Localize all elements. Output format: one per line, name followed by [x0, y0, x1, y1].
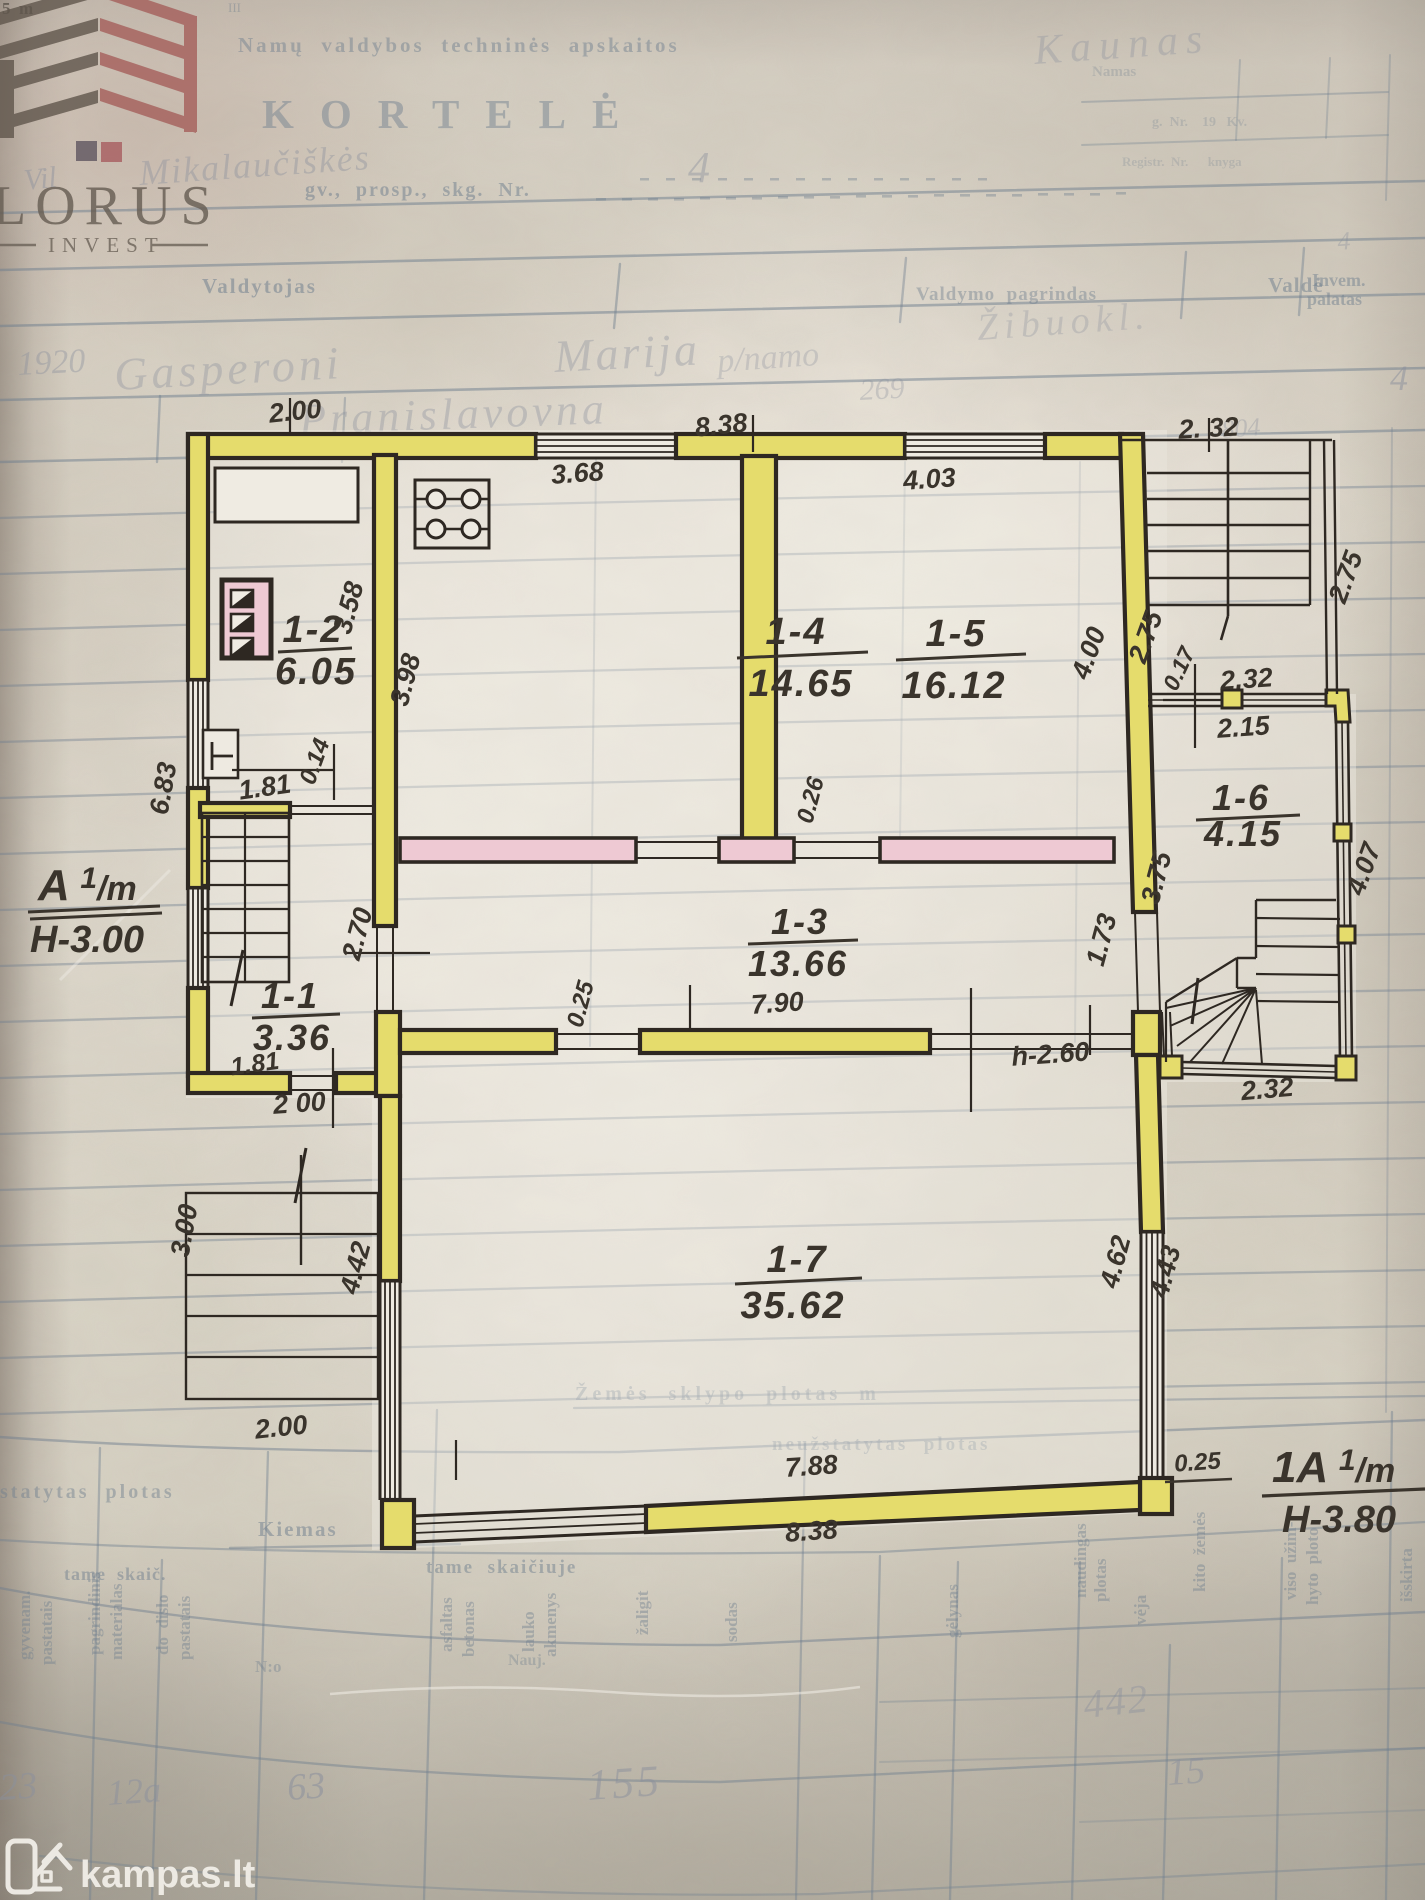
- svg-text:H-3.00: H-3.00: [30, 919, 144, 961]
- svg-text:12a: 12a: [106, 1769, 163, 1813]
- svg-text:16.12: 16.12: [901, 665, 1006, 707]
- svg-text:155: 155: [585, 1756, 663, 1810]
- svg-text:Kiemas: Kiemas: [258, 1517, 338, 1541]
- svg-text:1-1: 1-1: [261, 975, 319, 1016]
- svg-text:kampas.lt: kampas.lt: [80, 1854, 256, 1896]
- svg-text:269: 269: [859, 372, 906, 407]
- svg-text:7.90: 7.90: [750, 986, 805, 1020]
- svg-text:2.00: 2.00: [252, 1409, 308, 1444]
- svg-text:plotas: plotas: [1091, 1558, 1110, 1602]
- svg-text:išskirta: išskirta: [1397, 1548, 1416, 1602]
- svg-text:7.88: 7.88: [784, 1449, 839, 1483]
- svg-text:H-3.80: H-3.80: [1282, 1499, 1396, 1541]
- svg-text:tame skaič.: tame skaič.: [64, 1564, 166, 1584]
- svg-text:1-6: 1-6: [1212, 777, 1270, 818]
- svg-text:4.15: 4.15: [1203, 813, 1282, 854]
- svg-text:0.25: 0.25: [1173, 1447, 1222, 1477]
- svg-text:INVEST: INVEST: [48, 233, 165, 257]
- svg-text:23: 23: [0, 1764, 39, 1809]
- svg-text:14.65: 14.65: [748, 663, 853, 705]
- svg-text:akmenys: akmenys: [541, 1592, 560, 1657]
- svg-text:gyvenam.: gyvenam.: [15, 1591, 34, 1660]
- svg-text:pagrindinis: pagrindinis: [85, 1571, 104, 1655]
- svg-text:1-7: 1-7: [767, 1239, 828, 1281]
- svg-text:tame skaičiuje: tame skaičiuje: [426, 1557, 577, 1578]
- svg-text:2.32: 2.32: [1218, 662, 1274, 696]
- svg-text:1-4: 1-4: [766, 611, 827, 653]
- svg-text:III: III: [228, 0, 241, 15]
- svg-text:statytas plotas: statytas plotas: [0, 1481, 175, 1503]
- svg-text:1-5: 1-5: [926, 613, 987, 655]
- svg-text:8.38: 8.38: [784, 1514, 839, 1548]
- svg-text:betonas: betonas: [459, 1601, 478, 1657]
- svg-text:4: 4: [688, 143, 710, 192]
- svg-text:palatas: palatas: [1307, 289, 1362, 309]
- svg-text:6.05: 6.05: [275, 651, 357, 693]
- svg-text:N:o: N:o: [255, 1657, 281, 1676]
- svg-text:2.32: 2.32: [1239, 1072, 1295, 1107]
- svg-text:pastatais: pastatais: [175, 1595, 194, 1660]
- svg-text:63: 63: [286, 1764, 327, 1809]
- svg-text:8.38: 8.38: [693, 407, 748, 442]
- svg-text:KORTELĖ: KORTELĖ: [262, 91, 645, 137]
- svg-text:g. Nr. 19 Kv.: g. Nr. 19 Kv.: [1152, 115, 1247, 130]
- svg-text:gėlynas: gėlynas: [943, 1584, 962, 1638]
- svg-text:4: 4: [1336, 226, 1351, 256]
- svg-text:sodas: sodas: [722, 1602, 741, 1642]
- svg-text:žaligit: žaligit: [633, 1590, 652, 1635]
- svg-text:naudingas: naudingas: [1071, 1523, 1090, 1598]
- svg-text:kito žemės: kito žemės: [1190, 1511, 1209, 1592]
- svg-text:do dislo: do dislo: [153, 1595, 172, 1655]
- svg-text:lauko: lauko: [519, 1611, 538, 1652]
- svg-text:Invem.: Invem.: [1312, 270, 1366, 290]
- svg-text:13.66: 13.66: [748, 943, 848, 984]
- svg-text:1920: 1920: [16, 342, 86, 383]
- svg-text:3.68: 3.68: [550, 456, 605, 490]
- svg-text:Valdytojas: Valdytojas: [202, 274, 317, 298]
- svg-text:Registr. Nr. knyga: Registr. Nr. knyga: [1122, 154, 1242, 169]
- svg-text:asfaltas: asfaltas: [437, 1597, 456, 1652]
- svg-text:vėja: vėja: [1131, 1594, 1150, 1625]
- svg-text:gv., prosp., skg. Nr.: gv., prosp., skg. Nr.: [305, 179, 531, 201]
- svg-text:Namų valdybos techninės aps: Namų valdybos techninės apskaitos: [238, 33, 680, 57]
- svg-text:pastatais: pastatais: [37, 1600, 56, 1665]
- svg-text:35.62: 35.62: [740, 1285, 845, 1327]
- svg-text:p/namo: p/namo: [714, 336, 820, 380]
- svg-text:4: 4: [1390, 358, 1408, 398]
- svg-text:2. 32: 2. 32: [1177, 411, 1240, 444]
- svg-text:4.03: 4.03: [901, 462, 957, 496]
- svg-text:Marija: Marija: [552, 323, 701, 382]
- svg-text:materialas: materialas: [107, 1583, 126, 1660]
- svg-text:2.00: 2.00: [266, 393, 322, 428]
- svg-text:2.15: 2.15: [1215, 710, 1271, 744]
- svg-text:h-2.60: h-2.60: [1010, 1036, 1090, 1071]
- svg-text:442: 442: [1081, 1675, 1151, 1727]
- svg-text:15: 15: [1166, 1749, 1207, 1794]
- svg-text:1-3: 1-3: [771, 901, 829, 942]
- svg-text:2 00: 2 00: [271, 1086, 327, 1120]
- svg-text:LORUS: LORUS: [0, 175, 221, 237]
